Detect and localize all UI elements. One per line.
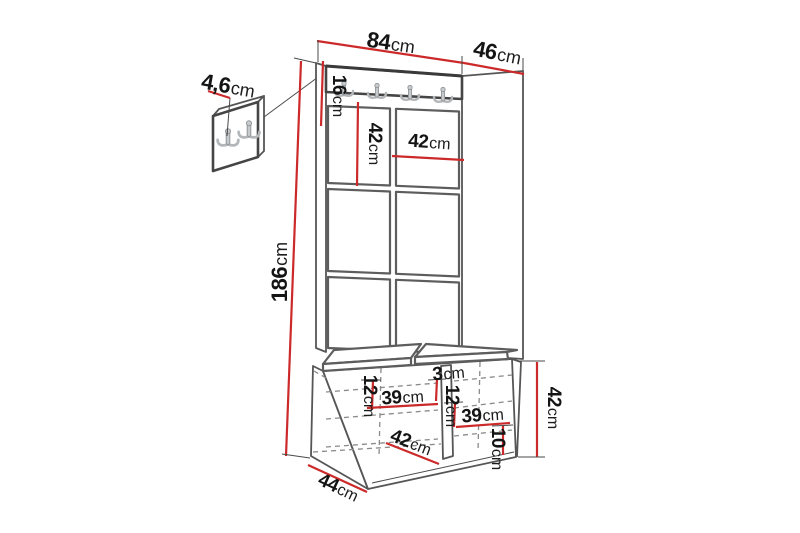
panel-tile xyxy=(396,280,459,354)
label-plinth-height: 10cm xyxy=(487,428,508,470)
label-bench-height: 42cm xyxy=(543,387,564,429)
label-top-width: 84cm xyxy=(365,27,416,59)
label-shelf-gap-left: 12cm xyxy=(359,375,380,417)
label-top-depth: 46cm xyxy=(471,36,523,70)
furniture-dimension-diagram: 84cm 46cm 4,6cm 16cm 42cm 42cm 186cm 3cm… xyxy=(0,0,800,533)
label-divider-thickness: 3cm xyxy=(431,362,465,386)
unit-right-side xyxy=(462,71,523,359)
panel-tile xyxy=(328,189,390,274)
panel-tile xyxy=(328,277,390,351)
dim-line-42-tile-v xyxy=(357,102,358,186)
panel-tile xyxy=(396,192,459,277)
label-rail-height: 16cm xyxy=(328,75,349,117)
label-compartment-right: 39cm xyxy=(461,404,505,428)
wall-panel xyxy=(316,63,523,359)
label-shelf-gap-right: 12cm xyxy=(441,385,462,427)
label-compartment-left: 39cm xyxy=(381,386,425,410)
label-total-height: 186cm xyxy=(267,242,292,302)
label-tile-height: 42cm xyxy=(364,123,385,165)
